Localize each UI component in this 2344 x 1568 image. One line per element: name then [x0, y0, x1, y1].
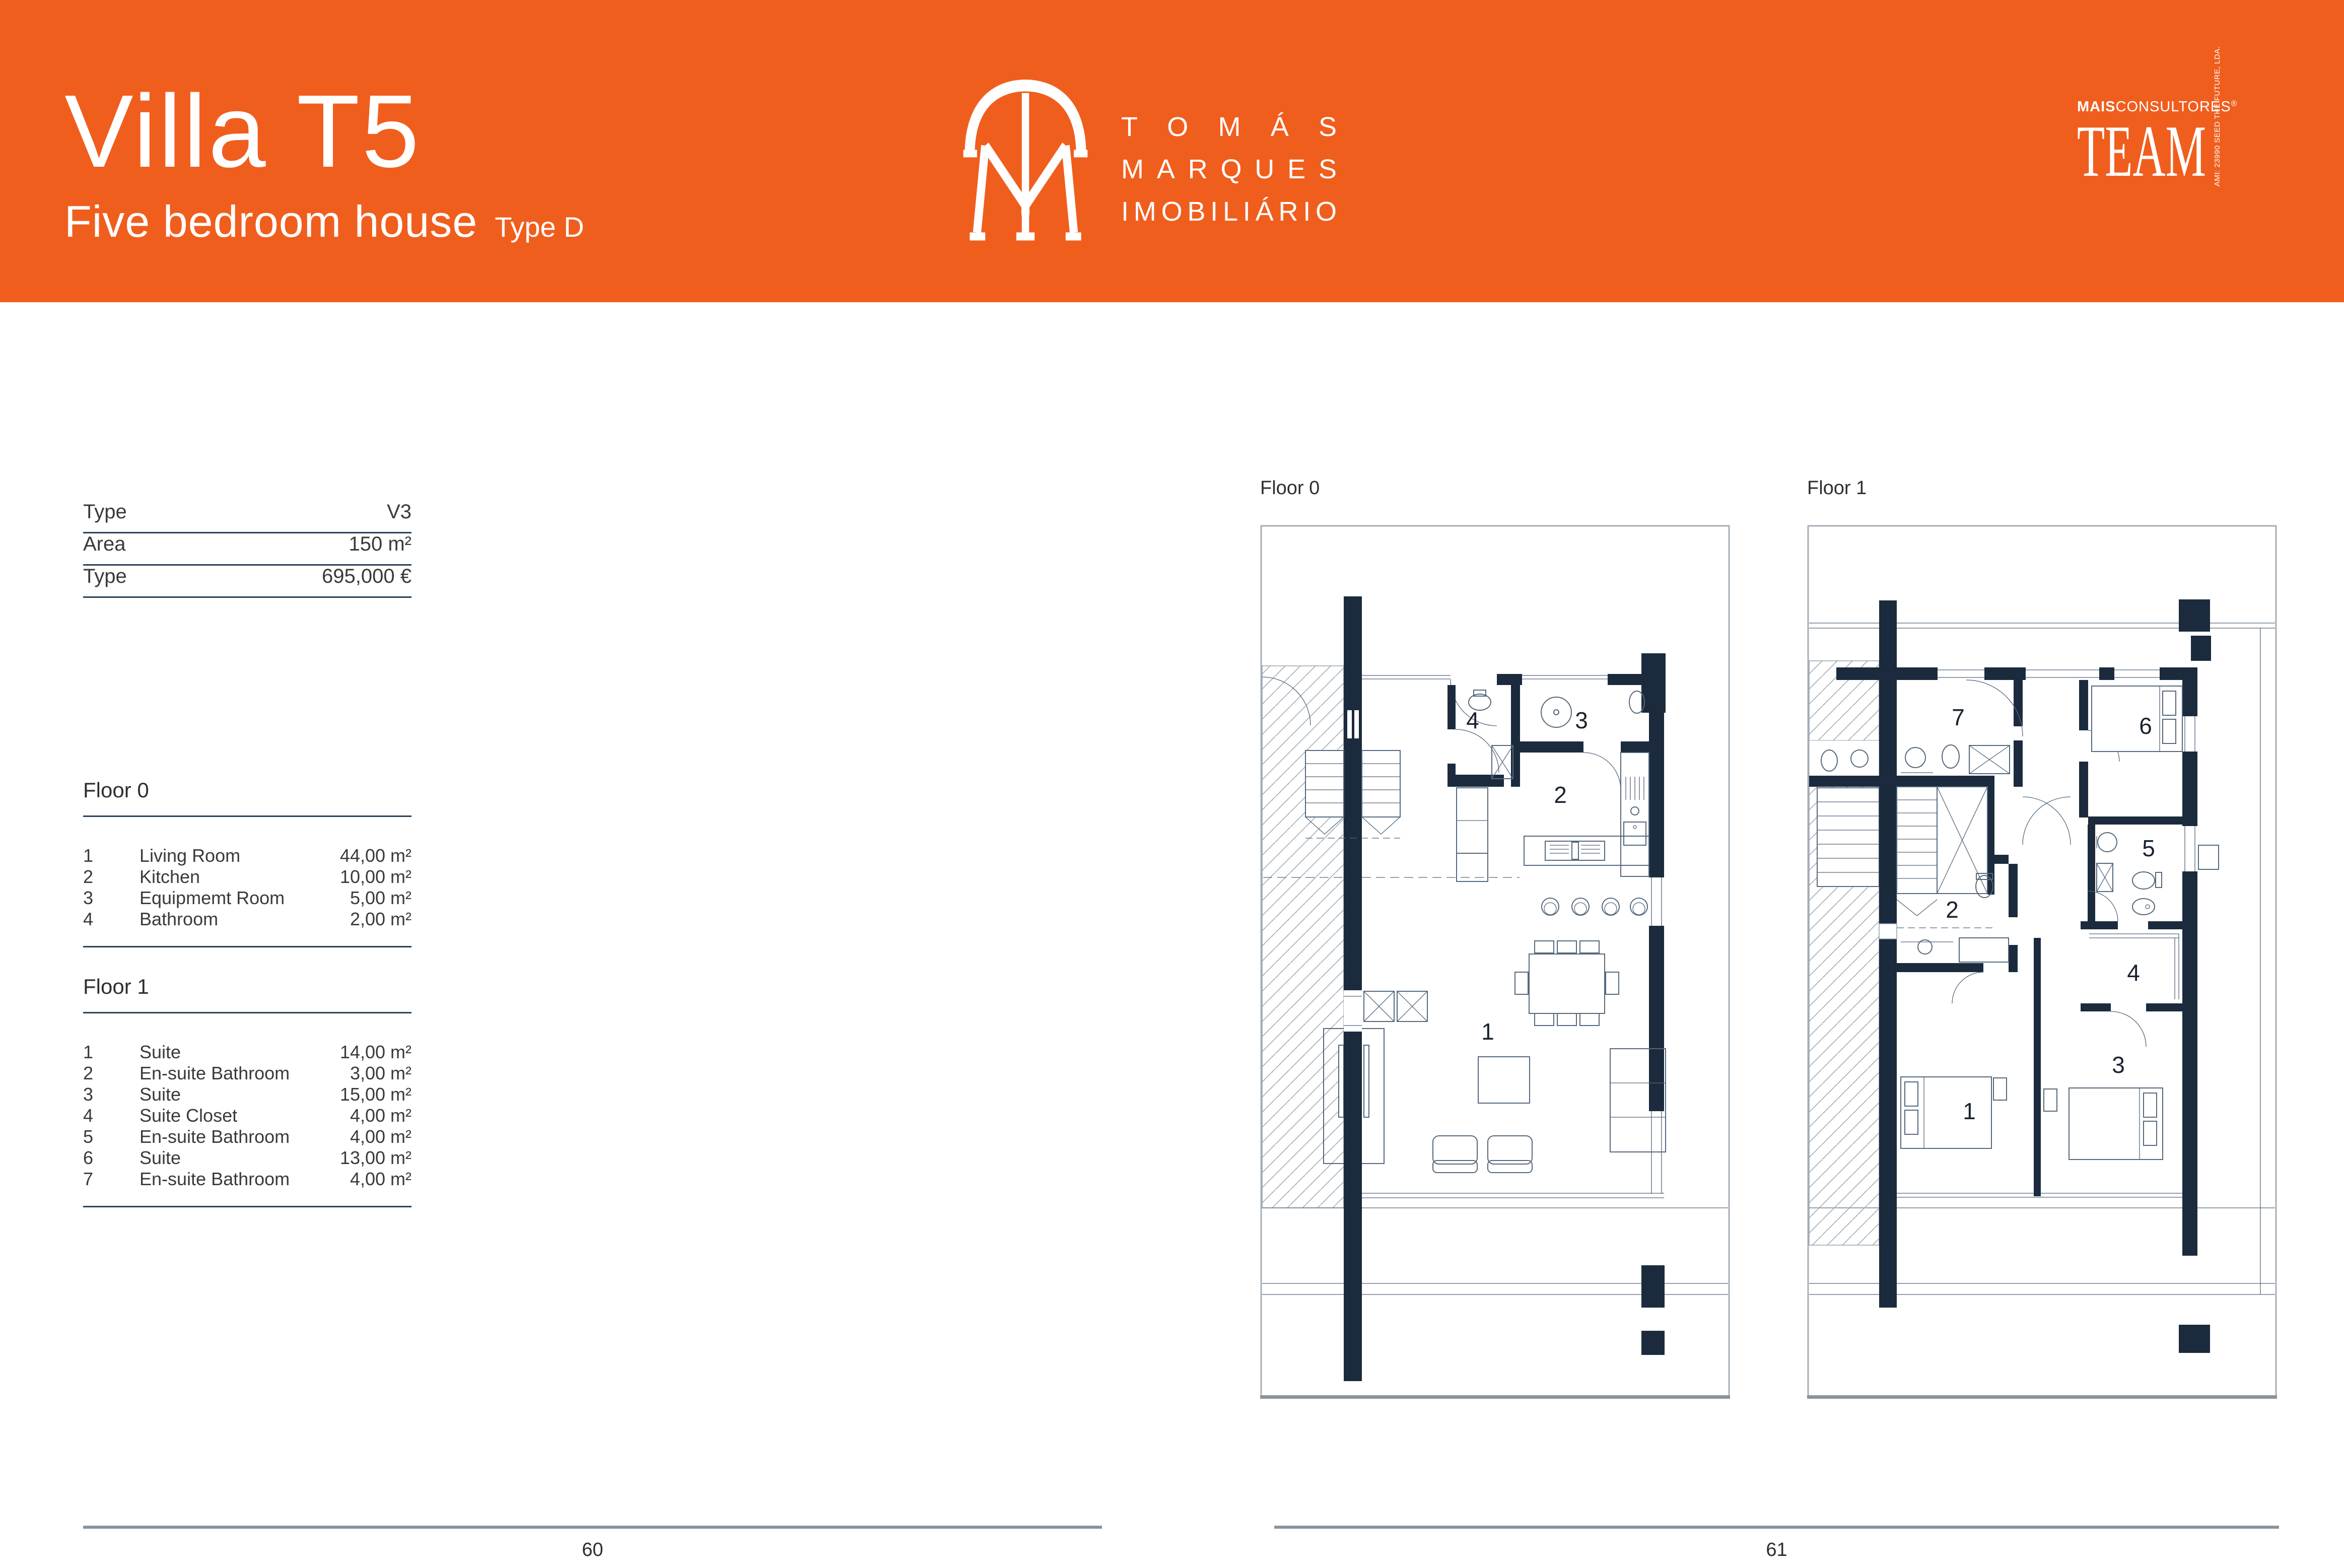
tm-monogram-icon: [957, 72, 1094, 254]
spec-row-price: Type 695,000 €: [83, 566, 411, 598]
plan-frame-shadow: [1260, 1395, 1730, 1399]
legend-row: 3 Suite 15,00 m²: [83, 1084, 411, 1105]
room-number: 5: [83, 1126, 140, 1147]
title-block: Villa T5 Five bedroom house Type D: [64, 80, 584, 247]
room-name: En-suite Bathroom: [140, 1063, 350, 1084]
team-logo-topline: MAISCONSULTORES®: [2077, 99, 2216, 115]
footer-rule-right: [1274, 1526, 2279, 1529]
registered-mark: ®: [2231, 99, 2238, 108]
room-area: 15,00 m²: [340, 1084, 411, 1105]
divider: [83, 1012, 411, 1013]
room-number: 1: [83, 845, 140, 866]
brand-wordmark: TOMÁS MARQUES IMOBILIÁRIO: [1121, 112, 1343, 230]
brand-line-1: TOMÁS: [1121, 112, 1337, 142]
page-title: Villa T5: [64, 80, 584, 183]
room-number: 4: [83, 909, 140, 930]
brand-line-3: IMOBILIÁRIO: [1121, 196, 1337, 227]
room-number: 3: [83, 888, 140, 909]
room-area: 3,00 m²: [350, 1063, 411, 1084]
room-number: 7: [83, 1169, 140, 1190]
room-number-label: 7: [1952, 704, 1965, 730]
legend-row: 4 Suite Closet 4,00 m²: [83, 1105, 411, 1126]
room-area: 10,00 m²: [340, 866, 411, 888]
page-number-left: 60: [83, 1539, 1102, 1561]
room-number-label: 4: [1466, 707, 1479, 733]
room-name: En-suite Bathroom: [140, 1169, 350, 1190]
team-word-text: TEAM: [2077, 119, 2206, 183]
spec-label: Type: [83, 501, 127, 523]
floor1-plan-drawing: 1 2 3 4 5 6 7: [1807, 525, 2277, 1399]
legend-row: 4 Bathroom 2,00 m²: [83, 909, 411, 930]
room-number-label: 2: [1946, 897, 1959, 923]
room-number-label: 1: [1481, 1018, 1494, 1045]
team-logo: MAISCONSULTORES® TEAM: [2077, 99, 2216, 185]
divider: [83, 815, 411, 817]
suite1-furniture: [1901, 1077, 2007, 1148]
room-number-label: 1: [1963, 1098, 1976, 1124]
room-number: 2: [83, 1063, 140, 1084]
legend-row: 1 Living Room 44,00 m²: [83, 845, 411, 866]
room-number-label: 6: [2139, 713, 2152, 739]
legend-row: 1 Suite 14,00 m²: [83, 1042, 411, 1063]
legend-row: 7 En-suite Bathroom 4,00 m²: [83, 1169, 411, 1190]
legend-rows: 1 Suite 14,00 m² 2 En-suite Bathroom 3,0…: [83, 1042, 411, 1190]
legend-row: 2 Kitchen 10,00 m²: [83, 866, 411, 888]
suite6-furniture: [2092, 686, 2182, 752]
legend-floor0: Floor 0 1 Living Room 44,00 m² 2 Kitchen…: [83, 778, 411, 947]
room-number-label: 3: [2112, 1052, 2125, 1078]
room-name: Suite: [140, 1042, 340, 1063]
room-area: 13,00 m²: [340, 1147, 411, 1169]
subtitle-row: Five bedroom house Type D: [64, 196, 584, 247]
spec-label: Type: [83, 565, 127, 588]
room-area: 4,00 m²: [350, 1126, 411, 1147]
team-wordmark: TEAM: [2077, 119, 2207, 183]
team-vertical-note: AMI: 23990 SEED THE FUTURE, LDA.: [2213, 123, 2222, 186]
room-number: 6: [83, 1147, 140, 1169]
room-name: Suite: [140, 1147, 340, 1169]
type-note: Type D: [495, 211, 584, 243]
page-subtitle: Five bedroom house: [64, 196, 477, 247]
footer-rule-left: [83, 1526, 1102, 1529]
room-number-label: 3: [1575, 707, 1588, 733]
room-number-label: 4: [2127, 960, 2140, 986]
room-name: Suite: [140, 1084, 340, 1105]
legend-title: Floor 1: [83, 975, 411, 999]
room-area: 2,00 m²: [350, 909, 411, 930]
plan-label-floor1: Floor 1: [1807, 478, 1867, 499]
room-number-label: 5: [2142, 835, 2155, 861]
spec-value: 695,000 €: [322, 565, 411, 588]
legend-row: 5 En-suite Bathroom 4,00 m²: [83, 1126, 411, 1147]
legend-row: 3 Equipmemt Room 5,00 m²: [83, 888, 411, 909]
legend-row: 2 En-suite Bathroom 3,00 m²: [83, 1063, 411, 1084]
room-number: 4: [83, 1105, 140, 1126]
spec-value: 150 m²: [349, 533, 412, 556]
room-number: 1: [83, 1042, 140, 1063]
brand-line-2: MARQUES: [1121, 154, 1337, 184]
team-prefix-bold: MAIS: [2077, 99, 2116, 115]
room-name: Living Room: [140, 845, 340, 866]
floor0-plan-drawing: 1 2 3 4: [1260, 525, 1730, 1399]
divider: [83, 946, 411, 947]
spec-label: Area: [83, 533, 126, 556]
legend-row: 6 Suite 13,00 m²: [83, 1147, 411, 1169]
legend-rows: 1 Living Room 44,00 m² 2 Kitchen 10,00 m…: [83, 845, 411, 930]
room-area: 14,00 m²: [340, 1042, 411, 1063]
room-number-label: 2: [1554, 782, 1567, 808]
spec-row-type: Type V3: [83, 501, 411, 533]
room-name: Equipmemt Room: [140, 888, 350, 909]
divider: [83, 1206, 411, 1207]
legend-floor1: Floor 1 1 Suite 14,00 m² 2 En-suite Bath…: [83, 975, 411, 1207]
room-area: 5,00 m²: [350, 888, 411, 909]
room-name: Kitchen: [140, 866, 340, 888]
room-area: 44,00 m²: [340, 845, 411, 866]
room-name: Bathroom: [140, 909, 350, 930]
legend-title: Floor 0: [83, 778, 411, 802]
room-area: 4,00 m²: [350, 1169, 411, 1190]
header-band: Villa T5 Five bedroom house Type D TOMÁS…: [0, 0, 2344, 302]
room-area: 4,00 m²: [350, 1105, 411, 1126]
page-number-right: 61: [1274, 1539, 2279, 1561]
room-name: Suite Closet: [140, 1105, 350, 1126]
spec-row-area: Area 150 m²: [83, 533, 411, 566]
room-number: 2: [83, 866, 140, 888]
spec-table: Type V3 Area 150 m² Type 695,000 €: [83, 501, 411, 598]
plan-label-floor0: Floor 0: [1260, 478, 1320, 499]
plan-frame-shadow: [1807, 1395, 2277, 1399]
room-name: En-suite Bathroom: [140, 1126, 350, 1147]
neighbor-hatch: [1809, 661, 1879, 1245]
room-number: 3: [83, 1084, 140, 1105]
spec-value: V3: [387, 501, 411, 523]
